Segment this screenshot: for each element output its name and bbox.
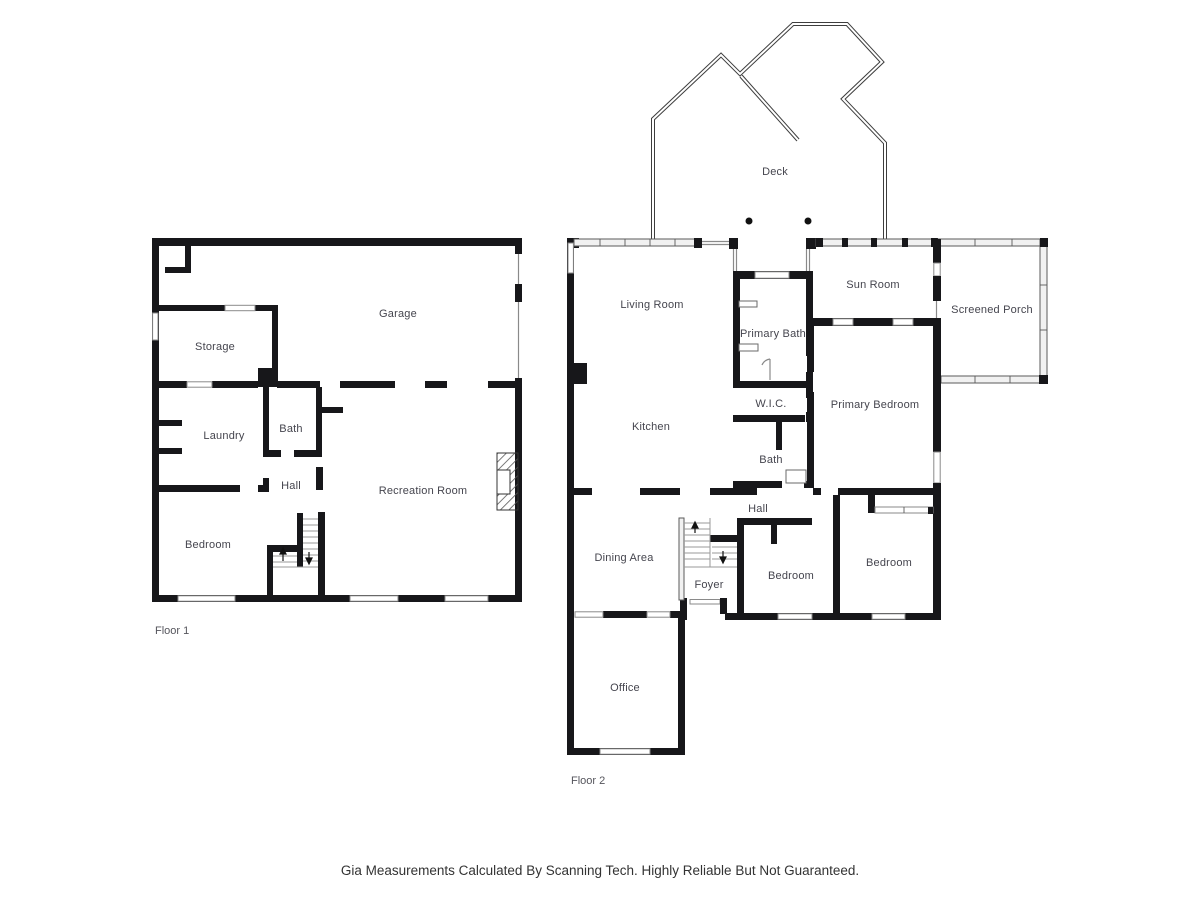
floor2-stairs xyxy=(684,518,737,567)
f1-label-hall: Hall xyxy=(281,480,301,492)
f2-label-bedroom-1: Bedroom xyxy=(768,570,814,582)
f2-label-dining-area: Dining Area xyxy=(594,552,653,564)
floorplan-page: Garage Storage Laundry Bath Hall Recreat… xyxy=(0,0,1200,900)
f2-label-sun-room: Sun Room xyxy=(846,279,900,291)
f2-label-primary-bedroom: Primary Bedroom xyxy=(831,399,920,411)
f2-label-screened-porch: Screened Porch xyxy=(951,304,1033,316)
deck-post xyxy=(746,218,753,225)
floor2-title: Floor 2 xyxy=(571,775,605,787)
f2-label-living-room: Living Room xyxy=(620,299,683,311)
bath-fixtures xyxy=(739,301,770,380)
f1-label-bath: Bath xyxy=(279,423,302,435)
f2-label-deck: Deck xyxy=(762,166,788,178)
floor1-title: Floor 1 xyxy=(155,625,189,637)
f2-label-foyer: Foyer xyxy=(694,579,723,591)
f2-label-hall: Hall xyxy=(748,503,768,515)
measurement-disclaimer: Gia Measurements Calculated By Scanning … xyxy=(0,863,1200,878)
f2-label-kitchen: Kitchen xyxy=(632,421,670,433)
f2-label-primary-bath: Primary Bath xyxy=(740,328,806,340)
f1-label-storage: Storage xyxy=(195,341,235,353)
fireplace xyxy=(497,453,518,510)
f1-label-garage: Garage xyxy=(379,308,417,320)
f2-label-office: Office xyxy=(610,682,640,694)
f2-label-bedroom-2: Bedroom xyxy=(866,557,912,569)
floorplan-linework xyxy=(0,0,1200,900)
deck-post xyxy=(805,218,812,225)
floor1-stairs xyxy=(273,519,318,567)
deck-railing xyxy=(653,24,885,239)
f2-label-bath: Bath xyxy=(759,454,782,466)
f2-label-wic: W.I.C. xyxy=(755,398,786,410)
f1-label-laundry: Laundry xyxy=(203,430,244,442)
f1-label-bedroom: Bedroom xyxy=(185,539,231,551)
f1-label-recreation-room: Recreation Room xyxy=(379,485,468,497)
